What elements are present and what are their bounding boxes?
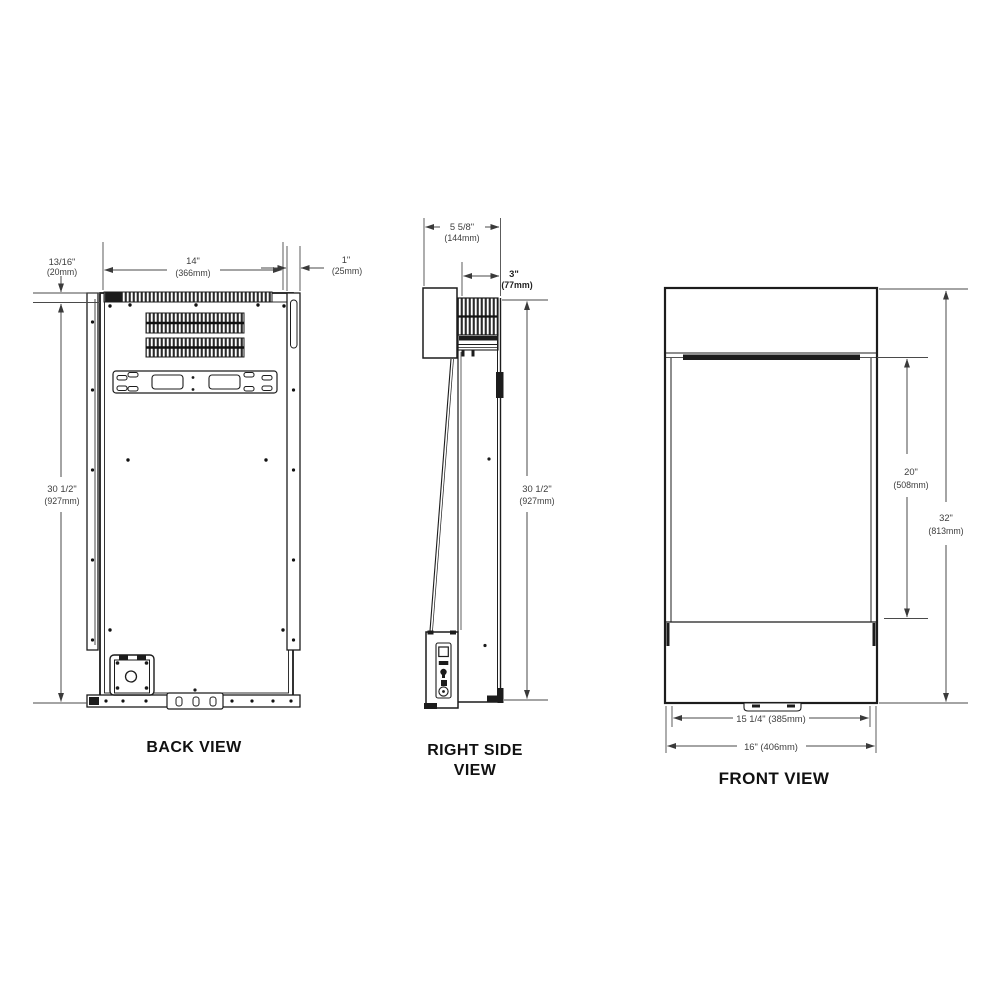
back-width-inch: 14" [186,255,200,266]
side-screw-hole-upper [487,457,490,460]
front-view-label: FRONT VIEW [719,769,830,788]
front-bottom-drain-tab [744,703,801,711]
back-view-label: BACK VIEW [146,739,242,756]
back-width-mm: (366mm) [175,268,210,278]
side-view-label-line1: RIGHT SIDE [427,742,523,759]
back-view: 13/16" (20mm) 14" (366mm) 1" (25mm) 30 1… [33,242,362,756]
back-offset-right-inch: 1" [342,254,351,265]
technical-drawing-page: 13/16" (20mm) 14" (366mm) 1" (25mm) 30 1… [0,0,1000,1000]
back-offset-left-mm: (20mm) [47,267,77,277]
back-junction-box [110,655,154,695]
front-top-trim-bar [683,355,860,361]
back-vent-grille-lower [146,338,244,357]
front-panel-height-inch: 20" [904,466,918,477]
front-overall-height-inch: 32" [939,512,953,523]
side-terminal-bar [439,661,449,665]
side-drain-fitting [441,680,447,686]
back-height-inch: 30 1/2" [47,483,76,494]
three-view-dimension-drawing: 13/16" (20mm) 14" (366mm) 1" (25mm) 30 1… [0,0,1000,1000]
front-cabinet-outline [665,288,877,703]
front-overall-height-mm: (813mm) [928,526,963,536]
side-front-depth-mm: (77mm) [501,280,532,290]
back-knockout-panel [113,371,277,393]
side-diagonal-brace [430,359,454,631]
side-view-label-line2: VIEW [454,762,497,779]
front-inner-width-dim: 15 1/4" (385mm) [736,713,806,724]
side-top-grille [458,298,498,335]
front-overall-width-dim: 16" (406mm) [744,741,798,752]
side-depth-inch: 5 5/8" [450,221,474,232]
side-bottom-corner-bracket [487,688,504,703]
back-offset-right-mm: (25mm) [332,266,362,276]
back-hanger-latch [106,293,122,302]
side-height-mm: (927mm) [519,496,554,506]
right-side-view: 5 5/8" (144mm) 3" (77mm) 30 1/2" (927mm)… [423,218,555,779]
front-panel-height-mm: (508mm) [893,480,928,490]
side-depth-mm: (144mm) [444,233,479,243]
back-hanger-strip [104,292,272,302]
side-bottom-compartment [424,631,458,710]
side-back-panel [423,288,457,358]
side-height-inch: 30 1/2" [522,483,551,494]
front-view: 20" (508mm) 32" (813mm) 15 1/4" (385mm) … [665,288,968,788]
side-front-depth-inch: 3" [509,268,519,279]
back-vent-grille-upper [146,313,244,333]
side-front-latch-block [496,372,504,398]
side-louver-band [458,335,498,357]
back-offset-left-inch: 13/16" [49,256,76,267]
side-screw-hole-lower [483,644,486,647]
back-height-mm: (927mm) [44,496,79,506]
back-bottom-rail-end-clip [89,697,99,705]
